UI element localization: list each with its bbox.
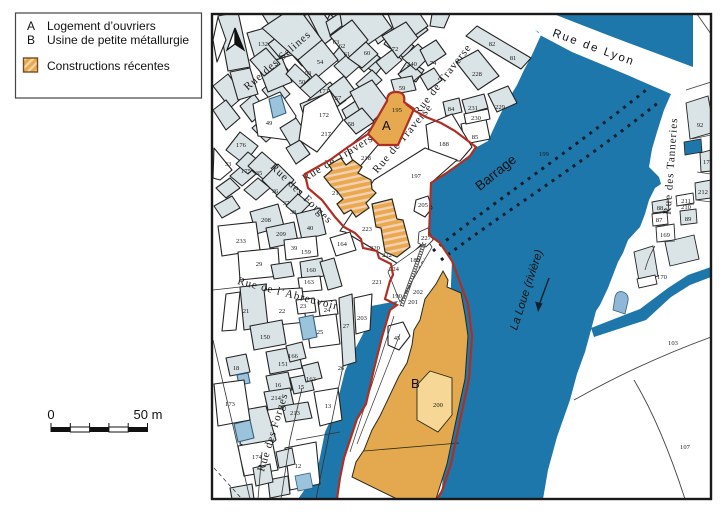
svg-text:201: 201 [408,299,418,306]
svg-text:170: 170 [657,274,668,281]
svg-text:188: 188 [439,141,450,148]
svg-text:49: 49 [266,120,273,127]
svg-text:195: 195 [392,107,403,114]
svg-text:163: 163 [304,279,315,286]
svg-text:92: 92 [697,122,704,129]
svg-text:171: 171 [319,88,329,95]
svg-text:16: 16 [275,382,282,389]
svg-text:208: 208 [261,217,272,224]
svg-text:26: 26 [338,365,345,372]
svg-text:84: 84 [448,106,455,113]
svg-text:35: 35 [256,170,263,177]
svg-text:166: 166 [288,353,299,360]
svg-text:199: 199 [539,151,550,158]
svg-text:53: 53 [305,70,312,77]
svg-text:190: 190 [392,293,403,300]
svg-text:Logement d’ouvriers: Logement d’ouvriers [47,19,156,33]
svg-text:29: 29 [256,261,263,268]
svg-text:203: 203 [357,315,368,322]
svg-text:231: 231 [468,105,478,112]
svg-text:33: 33 [225,161,232,168]
svg-text:81: 81 [510,55,517,62]
svg-text:229: 229 [495,104,506,111]
svg-text:25: 25 [317,329,324,336]
svg-text:89: 89 [685,216,692,223]
svg-text:Usine de petite métallurgie: Usine de petite métallurgie [47,33,189,47]
svg-text:82: 82 [489,41,496,48]
svg-text:13: 13 [325,403,332,410]
svg-text:160: 160 [306,267,317,274]
svg-text:233: 233 [236,238,247,245]
svg-text:27: 27 [343,323,350,330]
svg-text:59: 59 [399,85,406,92]
svg-text:72: 72 [392,46,399,53]
svg-text:107: 107 [680,444,691,451]
svg-text:B: B [27,33,35,47]
svg-text:159: 159 [301,249,312,256]
svg-text:205: 205 [418,202,429,209]
svg-text:Constructions récentes: Constructions récentes [47,59,170,73]
svg-text:0: 0 [47,407,54,422]
svg-text:209: 209 [276,231,287,238]
svg-text:45: 45 [394,335,401,342]
svg-text:61: 61 [344,51,351,58]
svg-text:50: 50 [299,79,306,86]
svg-text:B: B [411,376,420,391]
svg-text:15: 15 [298,384,305,391]
svg-text:37: 37 [283,200,290,207]
svg-text:103: 103 [668,340,679,347]
svg-text:230: 230 [471,115,482,122]
svg-text:176: 176 [236,142,247,149]
svg-text:202: 202 [413,289,423,296]
svg-text:213: 213 [290,410,301,417]
svg-text:132: 132 [258,41,268,48]
svg-text:87: 87 [656,217,663,224]
svg-text:21: 21 [243,308,250,315]
svg-text:62: 62 [339,43,346,50]
svg-text:18: 18 [233,365,240,372]
svg-text:175: 175 [241,168,252,175]
svg-text:38: 38 [290,209,297,216]
svg-text:57: 57 [335,95,342,102]
svg-text:228: 228 [472,71,483,78]
svg-text:54: 54 [317,59,324,66]
svg-text:40: 40 [307,225,314,232]
svg-text:169: 169 [660,232,671,239]
svg-text:172: 172 [319,112,329,119]
svg-text:50 m: 50 m [134,407,163,422]
svg-text:221: 221 [372,279,382,286]
svg-text:39: 39 [291,245,298,252]
svg-text:212: 212 [698,189,708,196]
svg-text:218: 218 [361,155,372,162]
svg-text:189: 189 [410,257,421,264]
svg-text:60: 60 [364,50,371,57]
svg-text:210: 210 [681,204,692,211]
svg-text:163: 163 [306,376,317,383]
svg-text:240: 240 [407,61,418,68]
svg-text:200: 200 [433,402,444,409]
svg-text:150: 150 [260,334,271,341]
svg-text:223: 223 [362,226,373,233]
svg-text:A: A [382,118,391,133]
svg-text:85: 85 [472,134,479,141]
svg-text:58: 58 [348,121,355,128]
svg-text:197: 197 [411,173,422,180]
svg-text:217: 217 [321,131,332,138]
svg-text:36: 36 [272,188,279,195]
svg-text:164: 164 [337,241,348,248]
svg-text:151: 151 [278,361,288,368]
svg-text:22: 22 [279,308,286,315]
svg-text:74: 74 [430,60,437,67]
svg-text:173: 173 [225,401,236,408]
svg-text:12: 12 [295,463,302,470]
svg-text:A: A [27,19,35,33]
